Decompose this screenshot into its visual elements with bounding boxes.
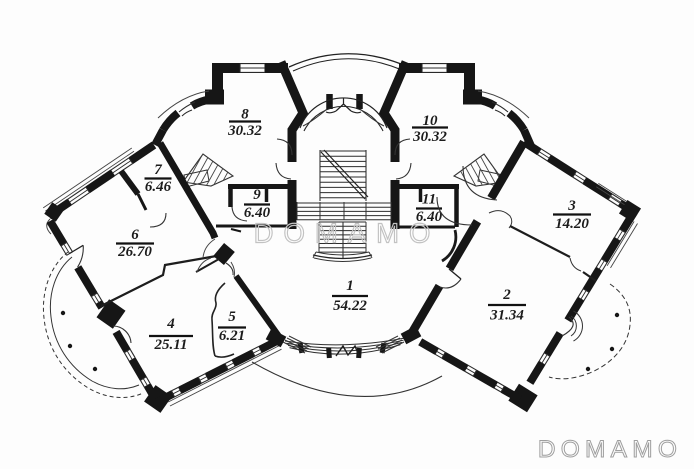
svg-text:1: 1: [346, 278, 354, 294]
svg-text:6: 6: [131, 227, 139, 243]
svg-text:7: 7: [154, 162, 162, 178]
svg-text:4: 4: [166, 316, 175, 332]
svg-text:11: 11: [422, 192, 436, 208]
svg-text:54.22: 54.22: [333, 298, 367, 314]
svg-text:25.11: 25.11: [154, 337, 188, 353]
svg-text:9: 9: [253, 187, 261, 203]
svg-text:8: 8: [241, 107, 249, 123]
svg-text:6.21: 6.21: [219, 328, 245, 344]
svg-text:6.46: 6.46: [145, 179, 172, 195]
svg-text:2: 2: [502, 287, 511, 303]
svg-text:DOMAMO: DOMAMO: [254, 218, 441, 249]
svg-text:30.32: 30.32: [227, 123, 262, 139]
svg-text:26.70: 26.70: [117, 244, 152, 260]
svg-text:3: 3: [567, 198, 576, 214]
svg-text:5: 5: [228, 309, 236, 325]
svg-text:31.34: 31.34: [489, 308, 524, 324]
svg-text:DOMAMO: DOMAMO: [538, 436, 682, 463]
svg-text:30.32: 30.32: [412, 129, 447, 145]
svg-text:14.20: 14.20: [555, 216, 589, 232]
